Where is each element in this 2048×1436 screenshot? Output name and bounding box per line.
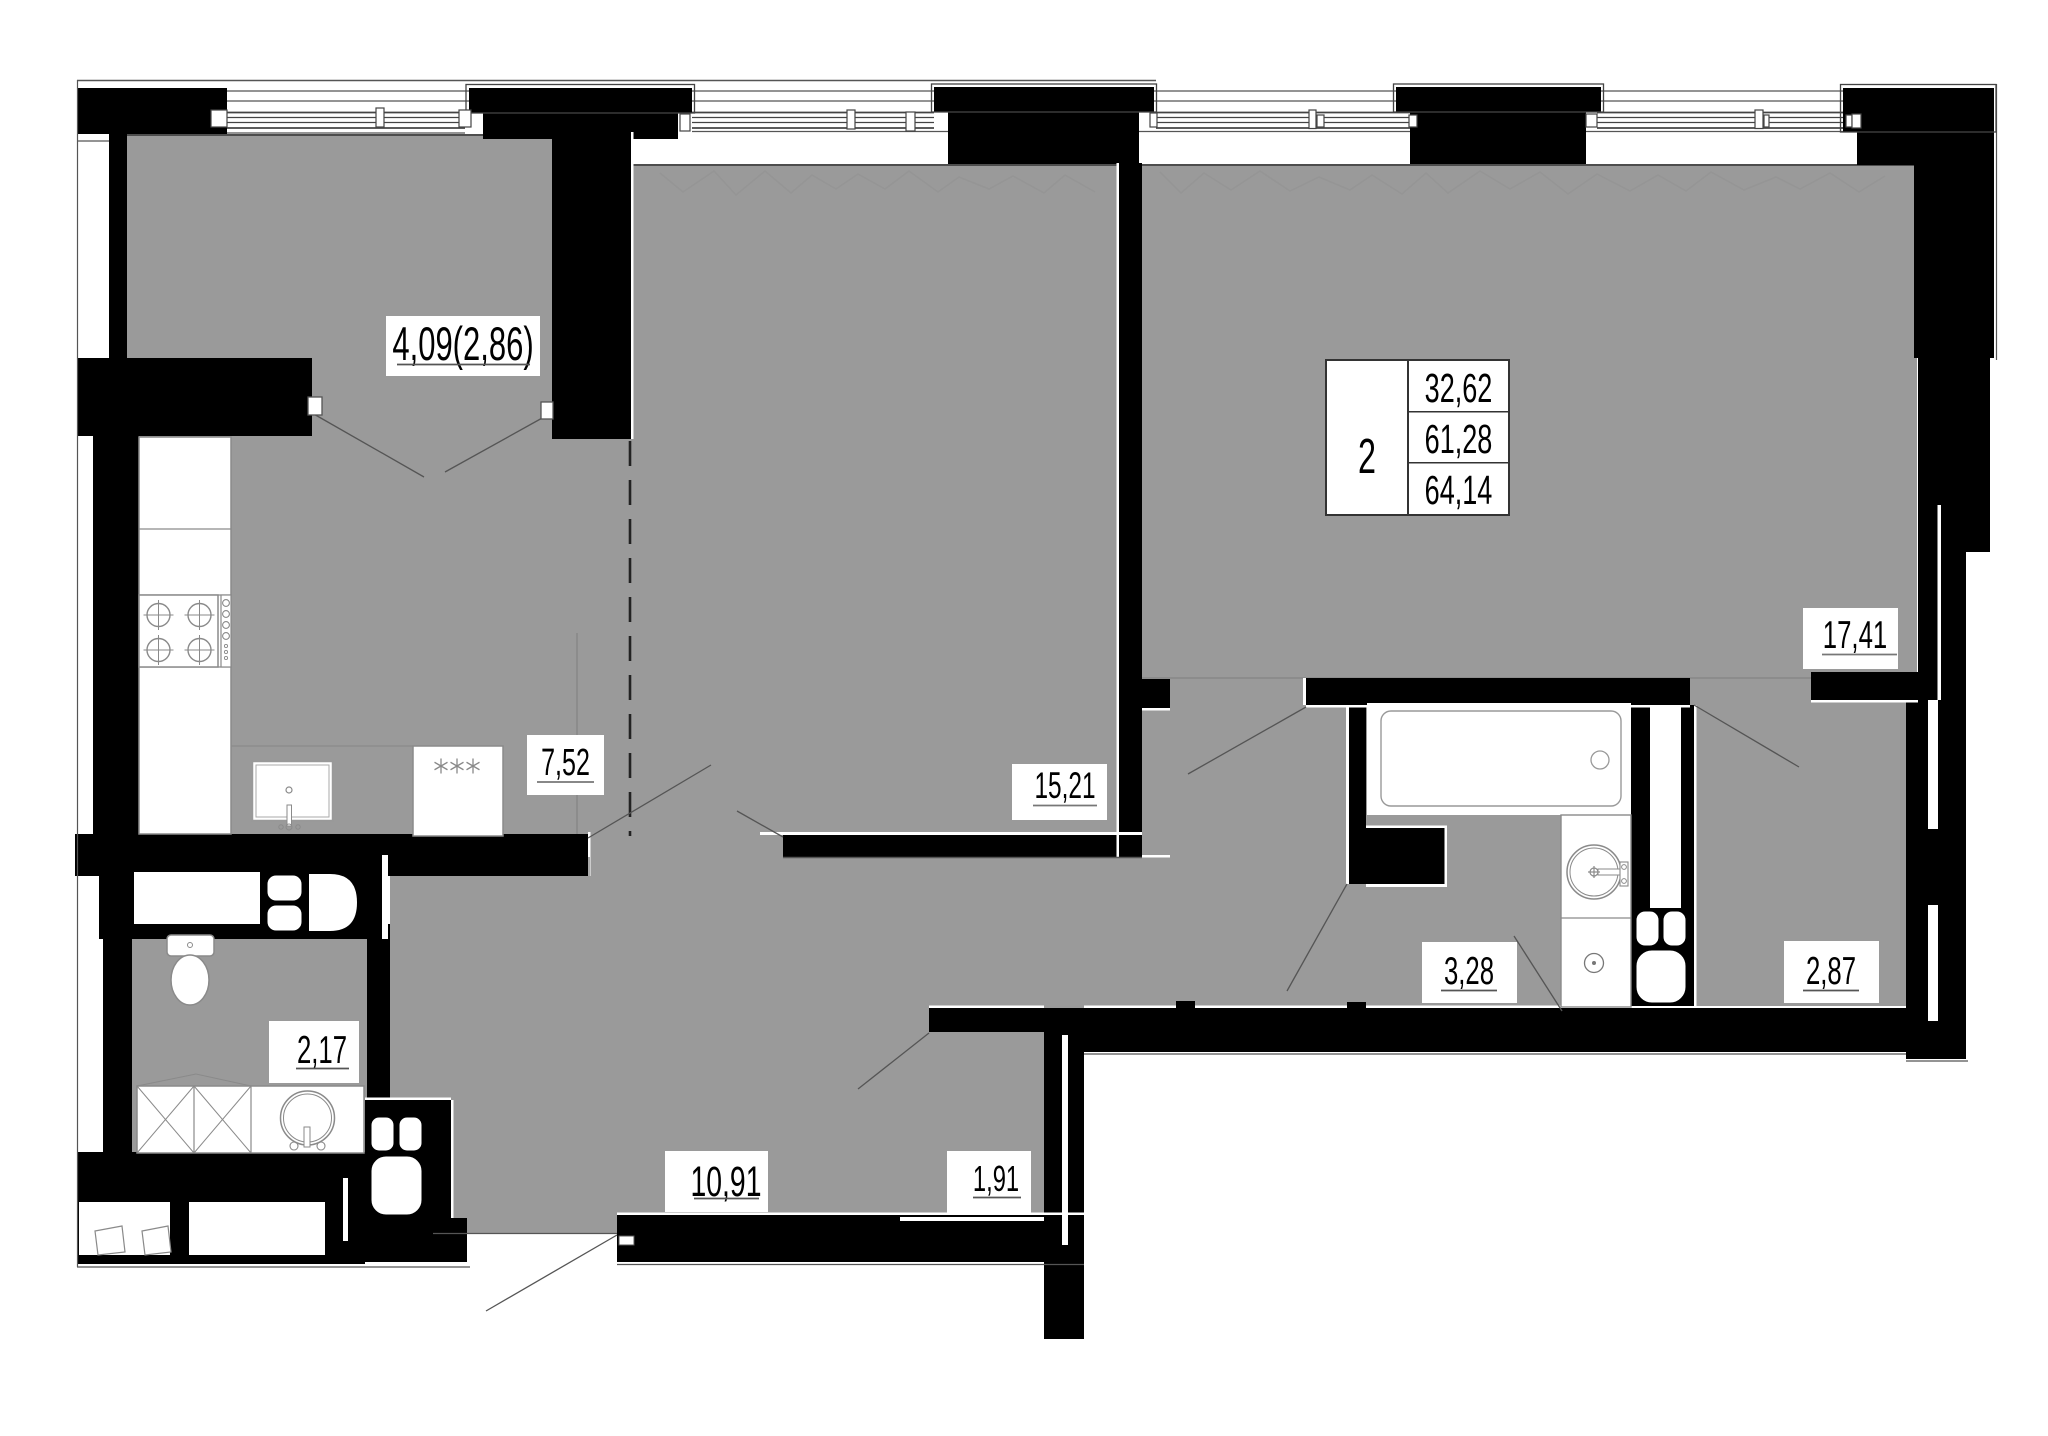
svg-text:15,21: 15,21: [1034, 765, 1095, 806]
svg-text:3,28: 3,28: [1444, 950, 1494, 994]
svg-text:61,28: 61,28: [1425, 418, 1493, 463]
svg-text:1,91: 1,91: [973, 1159, 1019, 1199]
svg-text:2: 2: [1358, 428, 1376, 483]
svg-text:7,52: 7,52: [541, 741, 590, 783]
svg-text:32,62: 32,62: [1425, 367, 1493, 412]
svg-text:4,09(2,86): 4,09(2,86): [392, 319, 533, 371]
svg-text:17,41: 17,41: [1823, 614, 1887, 658]
svg-text:64,14: 64,14: [1425, 469, 1493, 514]
svg-text:2,17: 2,17: [297, 1029, 347, 1073]
svg-text:2,87: 2,87: [1806, 950, 1856, 994]
